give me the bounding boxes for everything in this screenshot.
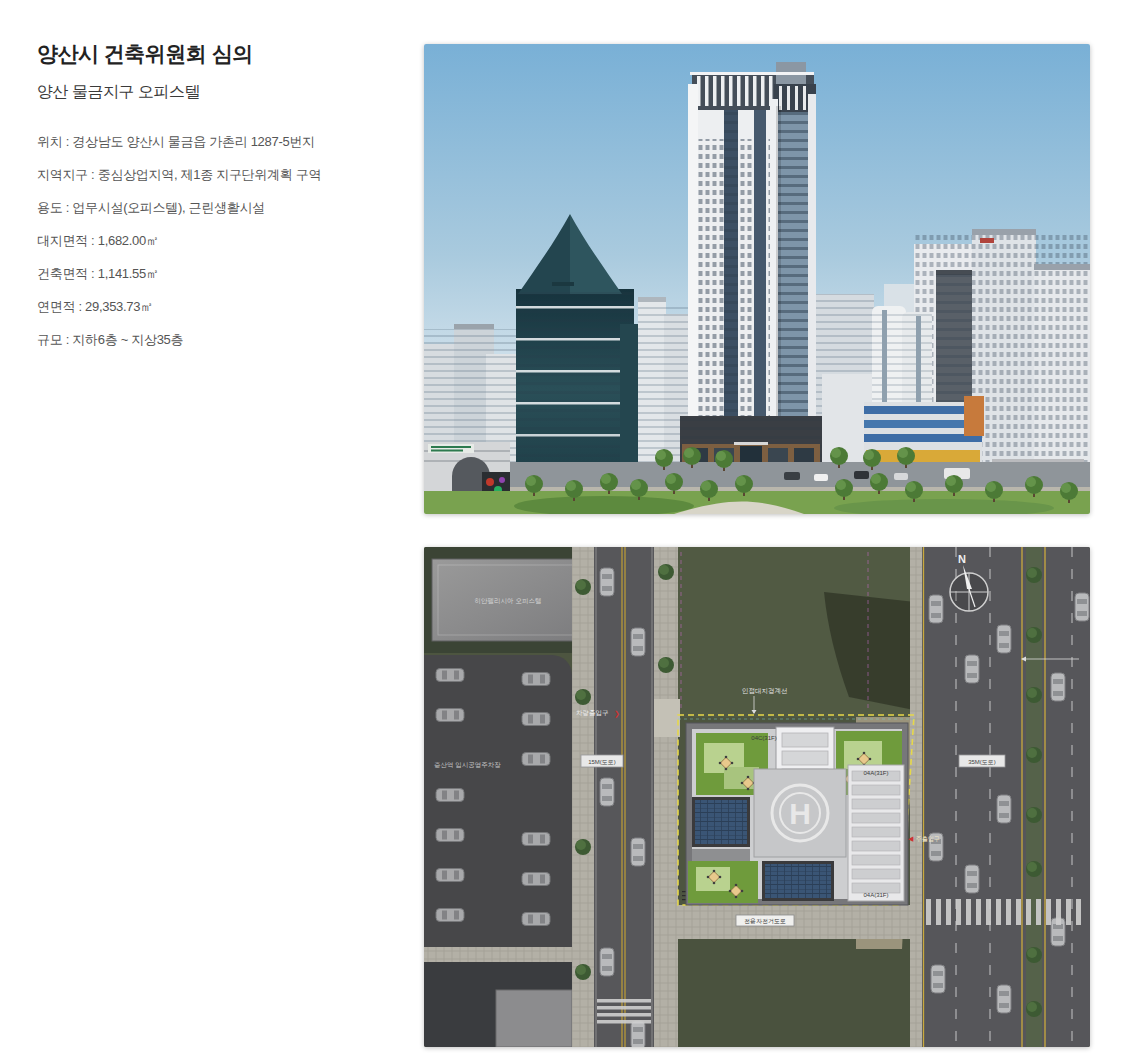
detail-scale: 규모 : 지하6층 ~ 지상35층 <box>37 333 407 346</box>
site-plan-image: 히안펠리시아 오피스텔 증산역 임시공영주차장 <box>424 547 1090 1047</box>
page-title: 양산시 건축위원회 심의 <box>37 40 407 68</box>
neighbor-building-label: 히안펠리시아 오피스텔 <box>475 597 542 604</box>
page: 양산시 건축위원회 심의 양산 물금지구 오피스텔 위치 : 경상남도 양산시 … <box>0 0 1122 1057</box>
siteplan-scene: 히안펠리시아 오피스텔 증산역 임시공영주차장 <box>424 547 1090 1047</box>
solar-panel-west <box>692 797 750 847</box>
detail-building-area: 건축면적 : 1,141.55㎡ <box>37 267 407 280</box>
detail-zoning: 지역지구 : 중심상업지역, 제1종 지구단위계획 구역 <box>37 168 407 181</box>
project-info-panel: 양산시 건축위원회 심의 양산 물금지구 오피스텔 위치 : 경상남도 양산시 … <box>37 40 407 366</box>
project-details-list: 위치 : 경상남도 양산시 물금읍 가촌리 1287-5번지 지역지구 : 중심… <box>37 135 407 346</box>
roof-corridor <box>692 849 750 861</box>
bike-path-label: 전용자전거도로 <box>744 918 786 924</box>
public-parking-lot: 증산역 임시공영주차장 <box>424 655 572 947</box>
left-road: 15M(도로) 차량출입구 ❯ <box>572 547 680 1047</box>
hero-tower <box>680 62 822 468</box>
left-road-width-label: 15M(도로) <box>588 759 616 765</box>
building-roof-plan: H <box>686 723 940 905</box>
roof-label-core: 04C(31F) <box>751 735 776 741</box>
helipad: H <box>754 769 846 857</box>
roof-label-east-upper: 04A(31F) <box>863 770 888 776</box>
building-rendering-image <box>424 44 1090 514</box>
roof-label-east-lower: 04A(31F) <box>863 892 888 898</box>
solar-panel-south <box>762 861 834 901</box>
main-entrance-arrow-icon: ◀ <box>908 835 914 842</box>
main-entrance-label: 주출입구 <box>916 836 940 842</box>
bottom-left-building <box>424 962 572 1047</box>
main-entrance-marker: ◀ 주출입구 <box>908 835 940 842</box>
rendering-scene <box>424 44 1090 514</box>
detail-site-area: 대지면적 : 1,682.00㎡ <box>37 234 407 247</box>
commercial-building <box>864 396 984 464</box>
vehicle-entrance-arrow-icon: ❯ <box>614 710 620 718</box>
detail-location: 위치 : 경상남도 양산시 물금읍 가촌리 1287-5번지 <box>37 135 407 148</box>
north-label: N <box>958 553 966 565</box>
east-louver-roof <box>848 765 904 901</box>
boundary-label: 인접대지경계선 <box>742 687 788 695</box>
parking-label: 증산역 임시공영주차장 <box>434 761 501 769</box>
vehicle-entrance-label: 차량출입구 <box>576 709 609 717</box>
helipad-letter: H <box>789 797 811 830</box>
roof-garden-sw <box>688 861 758 903</box>
detail-gross-floor-area: 연면적 : 29,353.73㎡ <box>37 300 407 313</box>
detail-use: 용도 : 업무시설(오피스텔), 근린생활시설 <box>37 201 407 214</box>
parking-walkway <box>424 947 572 962</box>
right-road-width-label: 35M(도로) <box>968 759 996 765</box>
project-subtitle: 양산 물금지구 오피스텔 <box>37 82 407 103</box>
neighbor-building: 히안펠리시아 오피스텔 <box>424 547 596 653</box>
